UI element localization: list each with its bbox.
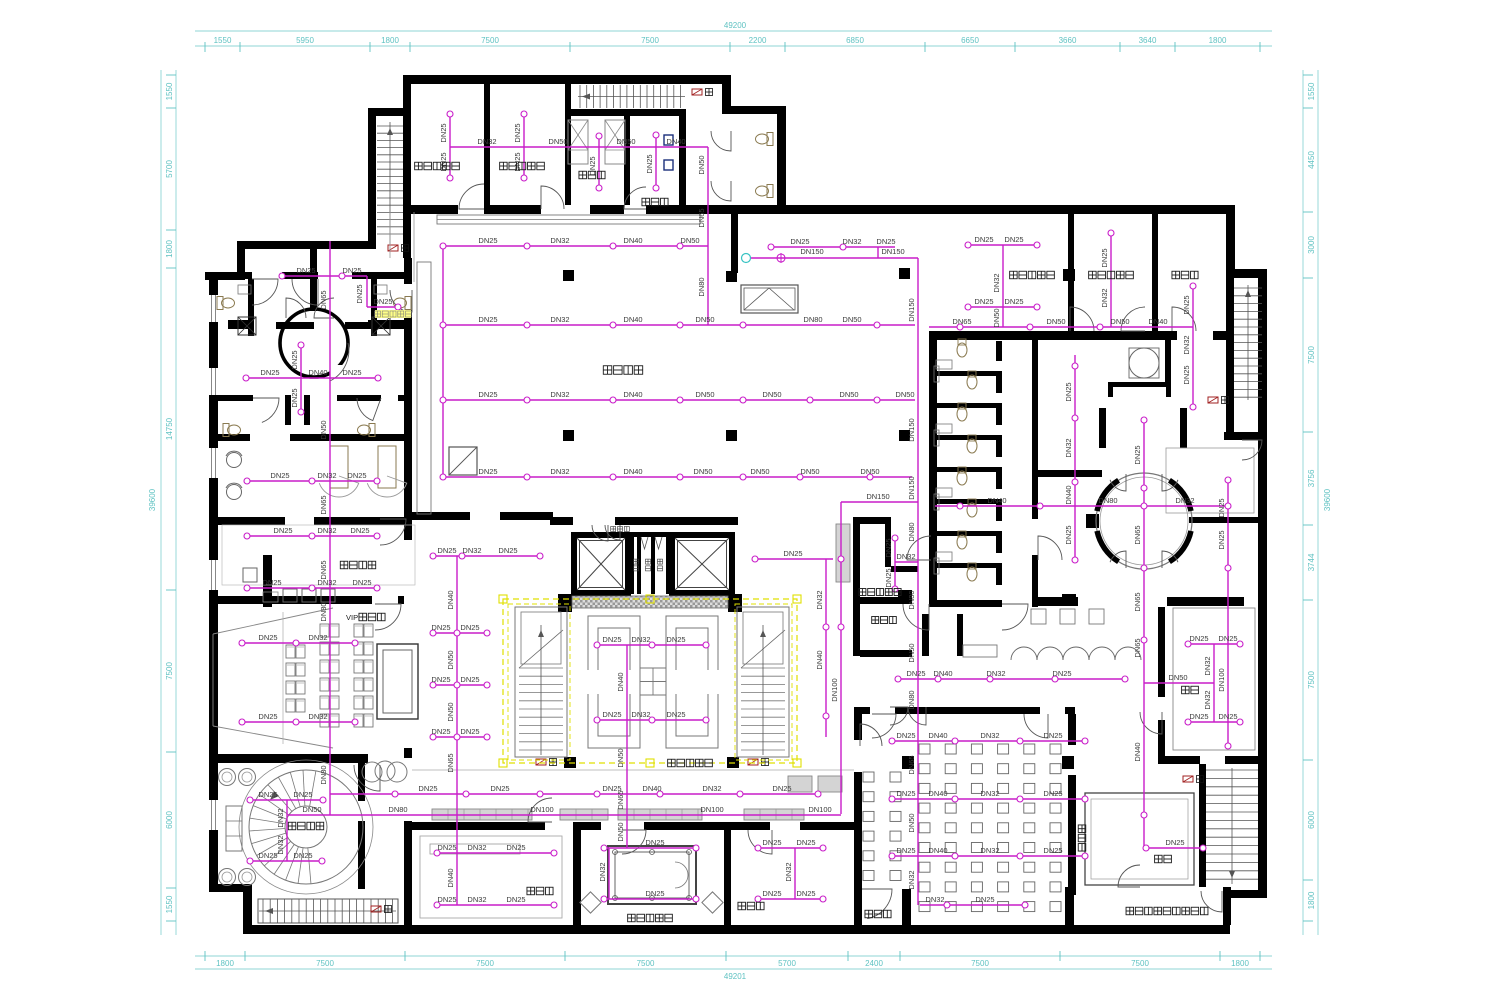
svg-text:DN80: DN80 [319, 765, 328, 784]
svg-text:DN80: DN80 [1098, 496, 1117, 505]
svg-text:DN80: DN80 [907, 690, 916, 709]
svg-text:1550: 1550 [1307, 82, 1316, 100]
svg-text:DN25: DN25 [270, 471, 289, 480]
svg-text:DN150: DN150 [907, 476, 916, 499]
svg-text:DN32: DN32 [925, 895, 944, 904]
svg-text:2400: 2400 [865, 959, 883, 968]
svg-text:DN25: DN25 [460, 727, 479, 736]
svg-text:DN150: DN150 [907, 298, 916, 321]
svg-text:DN25: DN25 [1004, 235, 1023, 244]
svg-text:DN25: DN25 [1043, 789, 1062, 798]
svg-text:DN80: DN80 [803, 315, 822, 324]
svg-text:2200: 2200 [749, 36, 767, 45]
svg-text:49201: 49201 [724, 972, 747, 981]
svg-text:DN32: DN32 [550, 236, 569, 245]
svg-text:DN40: DN40 [623, 315, 642, 324]
svg-text:DN25: DN25 [352, 578, 371, 587]
svg-text:DN65: DN65 [446, 753, 455, 772]
svg-text:DN32: DN32 [550, 390, 569, 399]
svg-text:DN25: DN25 [896, 789, 915, 798]
svg-text:DN80: DN80 [907, 522, 916, 541]
svg-text:DN40: DN40 [1133, 742, 1142, 761]
svg-text:DN32: DN32 [784, 862, 793, 881]
svg-text:7500: 7500 [637, 959, 655, 968]
svg-text:3000: 3000 [1307, 236, 1316, 254]
svg-text:DN25: DN25 [1064, 382, 1073, 401]
svg-text:DN32: DN32 [980, 789, 999, 798]
svg-text:DN40: DN40 [446, 590, 455, 609]
svg-text:DN32: DN32 [598, 862, 607, 881]
svg-text:DN32: DN32 [631, 710, 650, 719]
svg-text:DN25: DN25 [350, 526, 369, 535]
svg-text:DN32: DN32 [1175, 496, 1194, 505]
svg-text:4450: 4450 [1307, 151, 1316, 169]
svg-text:DN25: DN25 [974, 297, 993, 306]
svg-text:DN25: DN25 [896, 731, 915, 740]
svg-text:7500: 7500 [971, 959, 989, 968]
svg-text:DN40: DN40 [666, 137, 685, 146]
svg-text:DN40: DN40 [928, 846, 947, 855]
svg-text:DN25: DN25 [1043, 846, 1062, 855]
svg-text:DN25: DN25 [666, 635, 685, 644]
svg-text:6000: 6000 [165, 811, 174, 829]
svg-text:DN25: DN25 [437, 546, 456, 555]
svg-text:DN50: DN50 [1046, 317, 1065, 326]
svg-text:DN25: DN25 [258, 633, 277, 642]
svg-text:DN32: DN32 [467, 895, 486, 904]
svg-text:DN100: DN100 [700, 805, 723, 814]
svg-text:7500: 7500 [641, 36, 659, 45]
svg-text:DN25: DN25 [373, 297, 392, 306]
svg-text:DN25: DN25 [1064, 525, 1073, 544]
svg-text:DN80: DN80 [319, 602, 328, 621]
svg-text:DN25: DN25 [460, 675, 479, 684]
svg-text:DN25: DN25 [896, 846, 915, 855]
svg-text:DN40: DN40 [928, 789, 947, 798]
svg-text:DN50: DN50 [548, 137, 567, 146]
svg-text:DN25: DN25 [437, 843, 456, 852]
svg-text:DN32: DN32 [550, 315, 569, 324]
svg-text:DN50: DN50 [446, 650, 455, 669]
svg-text:DN25: DN25 [1218, 634, 1237, 643]
svg-text:DN25: DN25 [342, 368, 361, 377]
svg-text:DN32: DN32 [702, 784, 721, 793]
svg-text:DN50: DN50 [446, 702, 455, 721]
svg-text:3744: 3744 [1307, 553, 1316, 571]
svg-text:DN25: DN25 [602, 635, 621, 644]
svg-text:DN25: DN25 [884, 538, 893, 557]
svg-text:DN25: DN25 [478, 390, 497, 399]
svg-text:14750: 14750 [165, 417, 174, 440]
svg-text:DN32: DN32 [1203, 690, 1212, 709]
svg-text:DN80: DN80 [697, 277, 706, 296]
svg-text:5950: 5950 [296, 36, 314, 45]
svg-text:DN32: DN32 [467, 843, 486, 852]
svg-text:DN50: DN50 [895, 390, 914, 399]
svg-text:DN32: DN32 [462, 546, 481, 555]
svg-text:DN32: DN32 [907, 870, 916, 889]
svg-text:3640: 3640 [1139, 36, 1157, 45]
svg-text:DN65: DN65 [319, 495, 328, 514]
svg-text:DN50: DN50 [1110, 317, 1129, 326]
svg-text:DN25: DN25 [1052, 669, 1071, 678]
svg-text:DN25: DN25 [506, 843, 525, 852]
svg-text:DN65: DN65 [952, 317, 971, 326]
svg-text:1800: 1800 [1209, 36, 1227, 45]
svg-text:DN32: DN32 [992, 273, 1001, 292]
svg-text:6650: 6650 [961, 36, 979, 45]
svg-text:DN40: DN40 [928, 731, 947, 740]
svg-text:DN65: DN65 [1133, 638, 1142, 657]
svg-text:DN32: DN32 [815, 590, 824, 609]
svg-text:1800: 1800 [165, 240, 174, 258]
svg-text:DN25: DN25 [1189, 634, 1208, 643]
svg-text:DN25: DN25 [258, 790, 277, 799]
svg-text:DN100: DN100 [530, 805, 553, 814]
svg-text:DN150: DN150 [907, 418, 916, 441]
svg-text:DN50: DN50 [839, 390, 858, 399]
svg-text:DN50: DN50 [616, 822, 625, 841]
svg-text:7500: 7500 [1131, 959, 1149, 968]
svg-text:DN25: DN25 [906, 669, 925, 678]
svg-text:DN32: DN32 [550, 467, 569, 476]
svg-text:DN25: DN25 [290, 350, 299, 369]
svg-text:DN50: DN50 [842, 315, 861, 324]
svg-text:39600: 39600 [148, 488, 157, 511]
svg-text:DN65: DN65 [319, 560, 328, 579]
svg-text:DN50: DN50 [695, 390, 714, 399]
svg-text:DN25: DN25 [1218, 712, 1237, 721]
svg-text:DN25: DN25 [498, 546, 517, 555]
svg-text:VIP: VIP [346, 613, 358, 622]
svg-text:DN25: DN25 [1043, 731, 1062, 740]
svg-text:DN80: DN80 [907, 590, 916, 609]
svg-text:7500: 7500 [481, 36, 499, 45]
svg-text:1550: 1550 [214, 36, 232, 45]
svg-text:DN32: DN32 [477, 137, 496, 146]
svg-text:DN32: DN32 [1203, 656, 1212, 675]
svg-text:DN40: DN40 [623, 390, 642, 399]
svg-text:DN25: DN25 [1217, 498, 1226, 517]
svg-text:1800: 1800 [216, 959, 234, 968]
svg-text:DN25: DN25 [974, 235, 993, 244]
svg-text:DN80: DN80 [388, 805, 407, 814]
svg-text:39600: 39600 [1323, 488, 1332, 511]
svg-text:DN150: DN150 [866, 492, 889, 501]
svg-text:DN32: DN32 [317, 471, 336, 480]
svg-text:DN32: DN32 [842, 237, 861, 246]
svg-text:6850: 6850 [846, 36, 864, 45]
svg-text:3660: 3660 [1059, 36, 1077, 45]
svg-text:DN65: DN65 [319, 290, 328, 309]
svg-text:DN25: DN25 [418, 784, 437, 793]
svg-text:DN25: DN25 [439, 123, 448, 142]
svg-text:DN25: DN25 [260, 368, 279, 377]
svg-text:DN25: DN25 [790, 237, 809, 246]
svg-text:1800: 1800 [381, 36, 399, 45]
svg-text:DN25: DN25 [876, 237, 895, 246]
svg-text:DN25: DN25 [666, 710, 685, 719]
svg-text:DN50: DN50 [693, 467, 712, 476]
svg-text:DN25: DN25 [296, 266, 315, 275]
svg-text:DN25: DN25 [342, 266, 361, 275]
svg-text:DN25: DN25 [355, 284, 364, 303]
svg-text:DN25: DN25 [645, 154, 654, 173]
svg-text:DN25: DN25 [1217, 530, 1226, 549]
svg-text:DN40: DN40 [1148, 317, 1167, 326]
svg-text:DN50: DN50 [800, 467, 819, 476]
svg-text:DN65: DN65 [616, 790, 625, 809]
svg-text:DN40: DN40 [308, 368, 327, 377]
svg-text:DN32: DN32 [980, 846, 999, 855]
svg-text:DN25: DN25 [347, 471, 366, 480]
svg-text:DN32: DN32 [896, 552, 915, 561]
svg-text:6000: 6000 [1307, 811, 1316, 829]
svg-text:DN25: DN25 [437, 895, 456, 904]
svg-text:DN25: DN25 [290, 388, 299, 407]
svg-text:DN32: DN32 [308, 712, 327, 721]
svg-text:DN150: DN150 [800, 247, 823, 256]
svg-text:49200: 49200 [724, 21, 747, 30]
svg-text:DN25: DN25 [796, 889, 815, 898]
svg-text:DN50: DN50 [907, 643, 916, 662]
svg-text:DN65: DN65 [697, 208, 706, 227]
svg-text:DN32: DN32 [1100, 288, 1109, 307]
svg-text:DN25: DN25 [975, 895, 994, 904]
svg-text:DN25: DN25 [478, 315, 497, 324]
svg-text:DN25: DN25 [273, 526, 292, 535]
svg-text:DN25: DN25 [258, 851, 277, 860]
svg-text:DN25: DN25 [884, 568, 893, 587]
svg-text:DN40: DN40 [1064, 485, 1073, 504]
svg-text:DN40: DN40 [446, 868, 455, 887]
svg-text:DN32: DN32 [276, 835, 285, 854]
svg-text:DN50: DN50 [1168, 673, 1187, 682]
svg-text:DN25: DN25 [1165, 838, 1184, 847]
svg-text:DN32: DN32 [631, 635, 650, 644]
svg-text:DN25: DN25 [293, 790, 312, 799]
svg-text:DN25: DN25 [431, 675, 450, 684]
svg-text:DN25: DN25 [602, 710, 621, 719]
svg-text:DN25: DN25 [490, 784, 509, 793]
svg-text:DN50: DN50 [616, 748, 625, 767]
svg-text:DN100: DN100 [808, 805, 831, 814]
svg-text:DN50: DN50 [616, 137, 635, 146]
svg-text:DN32: DN32 [317, 578, 336, 587]
svg-text:1550: 1550 [165, 895, 174, 913]
svg-text:DN25: DN25 [1189, 712, 1208, 721]
svg-text:DN50: DN50 [860, 467, 879, 476]
svg-text:DN50: DN50 [695, 315, 714, 324]
svg-text:DN65: DN65 [907, 755, 916, 774]
svg-text:DN25: DN25 [506, 895, 525, 904]
svg-text:7500: 7500 [165, 662, 174, 680]
svg-text:DN50: DN50 [680, 236, 699, 245]
svg-text:DN25: DN25 [431, 727, 450, 736]
svg-text:1800: 1800 [1307, 891, 1316, 909]
svg-text:DN65: DN65 [1133, 525, 1142, 544]
svg-text:DN100: DN100 [830, 678, 839, 701]
svg-text:DN25: DN25 [1182, 295, 1191, 314]
svg-text:7500: 7500 [316, 959, 334, 968]
svg-text:DN25: DN25 [431, 623, 450, 632]
svg-text:DN32: DN32 [276, 808, 285, 827]
svg-text:7500: 7500 [1307, 671, 1316, 689]
svg-text:DN25: DN25 [645, 838, 664, 847]
svg-text:DN32: DN32 [308, 633, 327, 642]
svg-text:DN25: DN25 [602, 784, 621, 793]
svg-text:DN25: DN25 [460, 623, 479, 632]
svg-text:DN50: DN50 [319, 420, 328, 439]
svg-text:3756: 3756 [1307, 469, 1316, 487]
svg-text:DN25: DN25 [796, 838, 815, 847]
svg-text:DN100: DN100 [1217, 668, 1226, 691]
svg-text:7500: 7500 [1307, 346, 1316, 364]
svg-text:DN32: DN32 [1064, 438, 1073, 457]
svg-text:DN50: DN50 [697, 155, 706, 174]
svg-text:DN50: DN50 [302, 805, 321, 814]
svg-text:DN25: DN25 [1004, 297, 1023, 306]
svg-text:DN40: DN40 [623, 467, 642, 476]
svg-text:1800: 1800 [1231, 959, 1249, 968]
svg-text:DN25: DN25 [772, 784, 791, 793]
svg-text:DN25: DN25 [513, 123, 522, 142]
svg-text:DN25: DN25 [1133, 445, 1142, 464]
svg-text:5700: 5700 [165, 160, 174, 178]
svg-text:DN65: DN65 [1133, 592, 1142, 611]
svg-text:DN32: DN32 [980, 731, 999, 740]
svg-text:DN25: DN25 [478, 236, 497, 245]
svg-text:DN50: DN50 [992, 308, 1001, 327]
svg-text:DN40: DN40 [642, 784, 661, 793]
svg-text:DN150: DN150 [881, 247, 904, 256]
svg-text:DN32: DN32 [317, 526, 336, 535]
svg-text:DN50: DN50 [907, 813, 916, 832]
svg-text:DN25: DN25 [478, 467, 497, 476]
svg-text:7500: 7500 [476, 959, 494, 968]
svg-text:DN32: DN32 [1182, 335, 1191, 354]
svg-text:DN40: DN40 [933, 669, 952, 678]
svg-text:DN25: DN25 [262, 578, 281, 587]
svg-text:5700: 5700 [778, 959, 796, 968]
svg-text:DN25: DN25 [762, 889, 781, 898]
svg-text:DN25: DN25 [1182, 365, 1191, 384]
svg-text:DN40: DN40 [815, 650, 824, 669]
svg-text:DN25: DN25 [258, 712, 277, 721]
svg-text:DN50: DN50 [750, 467, 769, 476]
svg-text:1550: 1550 [165, 82, 174, 100]
svg-text:DN25: DN25 [783, 549, 802, 558]
svg-text:DN25: DN25 [1100, 248, 1109, 267]
svg-text:DN50: DN50 [762, 390, 781, 399]
svg-text:DN25: DN25 [762, 838, 781, 847]
svg-text:DN40: DN40 [987, 496, 1006, 505]
svg-text:DN25: DN25 [645, 889, 664, 898]
svg-text:DN32: DN32 [986, 669, 1005, 678]
svg-text:DN40: DN40 [623, 236, 642, 245]
svg-text:DN25: DN25 [293, 851, 312, 860]
svg-text:DN40: DN40 [616, 672, 625, 691]
